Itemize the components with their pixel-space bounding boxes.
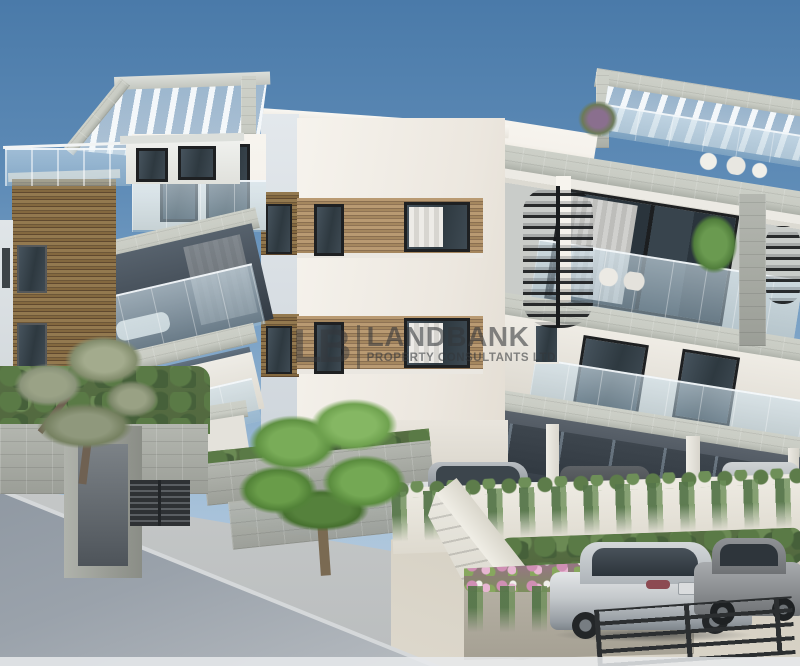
car-rear-glass [592, 548, 698, 576]
window [17, 245, 47, 293]
rooftop-glass-railing [5, 148, 131, 186]
olive-foliage [96, 374, 168, 424]
watermark-divider [357, 325, 360, 369]
spiral-staircase-far [766, 226, 800, 304]
spiral-staircase [523, 186, 593, 328]
car-taillight [646, 580, 670, 589]
left-edge-window [2, 248, 10, 288]
car-glass [720, 544, 778, 566]
stone-pier [739, 194, 766, 346]
window [266, 326, 292, 374]
architectural-rendering: LB LANDBANK PROPERTY CONSULTANTS LTD [0, 0, 800, 666]
watermark-tagline: PROPERTY CONSULTANTS LTD [367, 352, 556, 364]
rooftop-flowering-plant [571, 94, 625, 144]
watermark: LB LANDBANK PROPERTY CONSULTANTS LTD [293, 324, 583, 378]
watermark-text-block: LANDBANK PROPERTY CONSULTANTS LTD [367, 324, 556, 364]
window [266, 204, 292, 254]
balcony-plant [682, 204, 746, 284]
green-foliage [308, 446, 420, 518]
window [404, 202, 470, 252]
olive-tree [0, 322, 176, 488]
watermark-logo: LB [293, 324, 348, 368]
bottom-edge-strip [0, 657, 800, 666]
left-penthouse [126, 140, 240, 184]
window [314, 204, 344, 256]
spiral-staircase-pole [556, 186, 560, 328]
green-tree [220, 388, 422, 584]
penthouse-window [136, 148, 168, 182]
curtains [409, 207, 443, 247]
penthouse-window [178, 146, 216, 180]
center-tower-right-face [297, 118, 505, 428]
watermark-name: LANDBANK [367, 324, 556, 350]
